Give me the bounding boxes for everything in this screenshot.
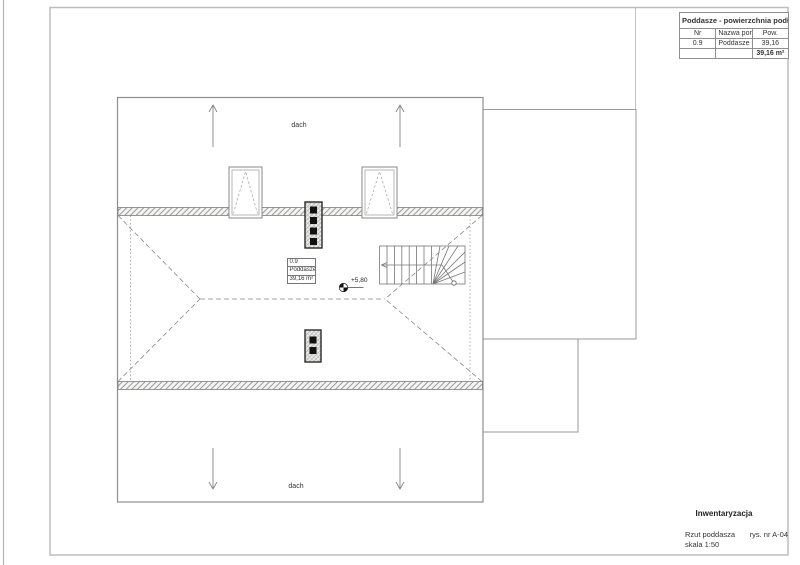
area-table-col-name: Nazwa pom. [716,29,752,39]
chimney-top [305,202,322,248]
main-roof-outline [118,98,484,503]
roof-window-right [362,167,397,218]
adjacent-roof-outlines [482,8,636,433]
area-table-col-nr: Nr [680,29,716,39]
drawing-number: rys. nr A-04 [750,530,788,539]
room-name-cell: Poddasze [716,39,752,49]
floor-plan-drawing [0,0,800,565]
room-number: 0.9 [288,259,315,266]
room-name: Poddasze [288,266,315,274]
room-area-cell: 39,16 [752,39,788,49]
roof-label-bottom: dach [276,483,316,490]
roof-window-left [229,167,262,218]
area-table-title: Poddasze - powierzchnia podłogi [680,13,789,29]
room-area: 39,16 m² [288,275,315,283]
chimney-bottom [305,330,321,362]
drawing-title: Rzut poddasza [685,530,735,539]
table-row: 0.9 Poddasze 39,16 [680,39,789,49]
level-marker-value: +5,80 [351,277,367,284]
room-tag: 0.9 Poddasze 39,16 m² [287,258,316,284]
drawing-scale: skala 1:50 [685,540,719,549]
area-table-col-area: Pow. [752,29,788,39]
drawing-sheet: dach dach 0.9 Poddasze 39,16 m² +5,80 Po… [0,0,800,565]
title-block-row: Rzut poddasza rys. nr A-04 [685,530,788,539]
staircase [380,246,466,285]
roof-label-top: dach [279,122,319,129]
area-table: Poddasze - powierzchnia podłogi Nr Nazwa… [679,12,789,59]
title-block-phase: Inwentaryzacja [660,509,788,518]
table-total-row: 39,16 m² [680,49,789,59]
total-area-cell: 39,16 m² [752,49,788,59]
room-nr-cell: 0.9 [680,39,716,49]
